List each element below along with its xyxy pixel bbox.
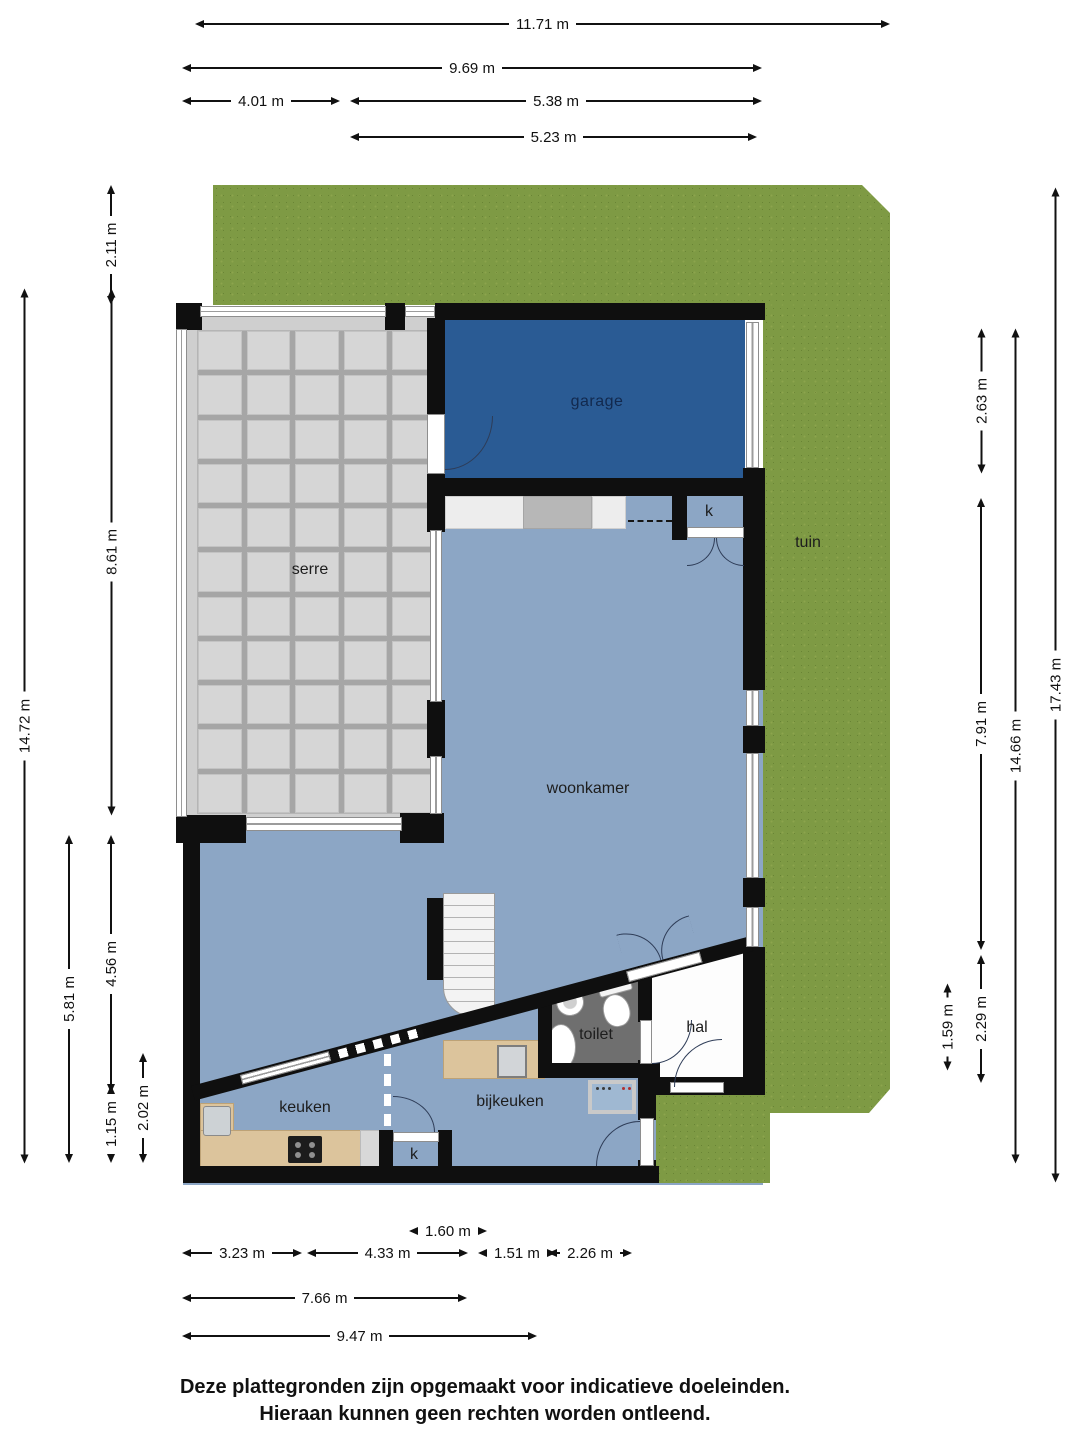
- stove-burners: [295, 1142, 301, 1148]
- serre-glass-panel: [295, 508, 339, 547]
- room-label-tuin: tuin: [795, 534, 821, 552]
- dimension-label: 7.91 m: [973, 694, 990, 754]
- room-label-hal: hal: [686, 1019, 707, 1037]
- dimension-label: 4.56 m: [103, 934, 120, 994]
- disclaimer-line-1: Deze plattegronden zijn opgemaakt voor i…: [0, 1374, 970, 1401]
- dimension-line: 9.47 m: [182, 1328, 537, 1344]
- dimension-label: 2.63 m: [973, 371, 990, 431]
- serre-glass-panel: [247, 375, 291, 414]
- dimension-label: 9.47 m: [330, 1328, 390, 1345]
- wall: [743, 878, 765, 907]
- wall: [435, 478, 765, 496]
- window: [200, 306, 386, 317]
- dimension-line: 1.15 m: [103, 1105, 119, 1163]
- wall: [385, 303, 405, 330]
- dimension-line: 7.66 m: [182, 1290, 467, 1306]
- window: [246, 817, 402, 831]
- serre-glass-panel: [295, 464, 339, 503]
- dimension-line: 17.43 m: [1047, 187, 1063, 1182]
- wall: [743, 468, 765, 690]
- wall: [427, 318, 445, 416]
- dimension-line: 5.81 m: [61, 835, 77, 1163]
- dimension-line: 3.23 m: [182, 1245, 302, 1261]
- serre-glass-panel: [295, 685, 339, 724]
- dimension-label: 7.66 m: [295, 1290, 355, 1307]
- dimension-label: 8.61 m: [103, 522, 120, 582]
- tuin-grass-patch: [656, 1093, 770, 1183]
- serre-glass-panel: [295, 331, 339, 370]
- dimension-line: 2.11 m: [103, 185, 119, 305]
- window: [746, 753, 759, 878]
- serre-glass-panel: [295, 641, 339, 680]
- dimension-label: 1.15 m: [103, 1094, 120, 1154]
- wall: [438, 1130, 452, 1168]
- floor-plan: 11.71 m9.69 m4.01 m5.38 m5.23 m2.11 m8.6…: [0, 0, 1080, 1440]
- room-label-serre: serre: [292, 561, 328, 579]
- serre-glass-panel: [295, 375, 339, 414]
- dimension-label: 14.72 m: [16, 691, 33, 759]
- dimension-label: 2.26 m: [560, 1245, 620, 1262]
- dimension-line: 5.23 m: [350, 129, 757, 145]
- dimension-line: 1.60 m: [409, 1223, 468, 1239]
- serre-glass-panel: [344, 375, 388, 414]
- serre-glass-panel: [198, 552, 242, 591]
- kitchen-sink: [203, 1106, 231, 1136]
- serre-glass-panel: [198, 464, 242, 503]
- room-label-toilet: toilet: [579, 1026, 613, 1044]
- wall: [427, 700, 445, 758]
- dimension-label: 9.69 m: [442, 60, 502, 77]
- room-label-garage: garage: [571, 393, 624, 411]
- dimension-line: 7.91 m: [973, 498, 989, 950]
- toilet-door-threshold: [640, 1020, 652, 1064]
- dimension-line: 2.29 m: [973, 955, 989, 1083]
- wall: [400, 813, 444, 843]
- serre-glass-panel: [344, 774, 388, 813]
- garage-door-threshold: [427, 414, 445, 474]
- serre-glass-panel: [344, 508, 388, 547]
- closet-top-threshold: [687, 527, 744, 538]
- serre-glass-panel: [295, 597, 339, 636]
- open-partition: [384, 1054, 391, 1132]
- dimension-label: 14.66 m: [1007, 711, 1024, 779]
- wall: [427, 898, 443, 980]
- dimension-label: 11.71 m: [509, 16, 576, 33]
- dimension-line: 2.63 m: [973, 328, 989, 473]
- dimension-line: 4.33 m: [307, 1245, 468, 1261]
- wall: [176, 303, 202, 330]
- room-label-keuken: keuken: [279, 1099, 331, 1117]
- serre-glass-panel: [344, 420, 388, 459]
- dimension-line: 4.01 m: [182, 93, 340, 109]
- dimension-label: 2.29 m: [973, 989, 990, 1049]
- dimension-label: 4.01 m: [231, 93, 291, 110]
- window: [430, 756, 442, 814]
- wall: [183, 1166, 659, 1183]
- serre-glass-panel: [198, 331, 242, 370]
- dimension-label: 5.81 m: [61, 969, 78, 1029]
- serre-glass-panel: [344, 464, 388, 503]
- back-door-threshold: [640, 1118, 654, 1166]
- dimension-line: 4.56 m: [103, 835, 119, 1093]
- serre-glass-panel: [344, 641, 388, 680]
- serre-glass-panel: [247, 641, 291, 680]
- serre-glass-panel: [344, 597, 388, 636]
- wall: [672, 480, 687, 540]
- serre-glass-panel: [247, 420, 291, 459]
- dimension-label: 5.38 m: [526, 93, 586, 110]
- wall: [743, 947, 765, 1095]
- room-label-closet-top: k: [705, 503, 713, 521]
- dimension-label: 5.23 m: [524, 129, 584, 146]
- disclaimer-line-2: Hieraan kunnen geen rechten worden ontle…: [0, 1401, 970, 1428]
- tuin-grass-top: [213, 185, 890, 305]
- serre-glass-panel: [247, 597, 291, 636]
- dimension-line: 14.72 m: [16, 288, 32, 1163]
- cabinet-strip: [592, 496, 626, 529]
- serre-glass-panel: [198, 641, 242, 680]
- dimension-line: 8.61 m: [103, 288, 119, 815]
- room-label-bijkeuken: bijkeuken: [476, 1093, 544, 1111]
- window: [176, 329, 187, 817]
- wall: [379, 1130, 393, 1168]
- serre-glass-panel: [247, 729, 291, 768]
- window: [430, 530, 442, 702]
- serre-glass-panel: [247, 508, 291, 547]
- serre-glass-panel: [295, 774, 339, 813]
- dimension-label: 1.60 m: [418, 1223, 478, 1240]
- serre-glass-panel: [198, 420, 242, 459]
- dimension-label: 2.11 m: [103, 216, 120, 275]
- dimension-label: 1.51 m: [487, 1245, 547, 1262]
- serre-glass-panel: [247, 552, 291, 591]
- dimension-line: 11.71 m: [195, 16, 890, 32]
- serre-glass-panel: [344, 685, 388, 724]
- room-label-closet-bottom: k: [410, 1146, 418, 1164]
- window: [746, 690, 759, 726]
- room-label-woonkamer: woonkamer: [547, 780, 630, 798]
- serre-glass-panel: [198, 685, 242, 724]
- stove: [288, 1136, 322, 1163]
- serre-glass-panel: [344, 729, 388, 768]
- wall: [435, 303, 765, 320]
- serre-glass-panel: [344, 552, 388, 591]
- cabinet-strip: [445, 496, 524, 529]
- washer: [497, 1045, 527, 1078]
- dimension-label: 2.02 m: [135, 1078, 152, 1138]
- cabinet-strip: [523, 496, 592, 529]
- utility-counter: [443, 1040, 545, 1079]
- dimension-label: 17.43 m: [1047, 650, 1064, 718]
- stairs: [443, 893, 495, 1017]
- dimension-label: 1.59 m: [939, 997, 956, 1057]
- window: [746, 322, 759, 468]
- window: [746, 907, 759, 947]
- wall: [743, 726, 765, 753]
- meter-cupboard: [588, 1080, 636, 1114]
- serre-glass-panel: [198, 774, 242, 813]
- dimension-line: 1.51 m: [478, 1245, 537, 1261]
- serre-glass-panel: [247, 331, 291, 370]
- serre-glass-panel: [198, 375, 242, 414]
- dimension-line: 5.38 m: [350, 93, 762, 109]
- serre-glass-panel: [295, 729, 339, 768]
- serre-glass-panel: [198, 597, 242, 636]
- serre-glass-panel: [295, 420, 339, 459]
- serre-glass-panel: [247, 685, 291, 724]
- dimension-line: 1.59 m: [939, 983, 955, 1070]
- dimension-label: 3.23 m: [212, 1245, 272, 1262]
- dimension-line: 14.66 m: [1007, 328, 1023, 1163]
- serre-glass-panel: [198, 729, 242, 768]
- dimension-line: 2.02 m: [135, 1053, 151, 1163]
- wall: [638, 1077, 656, 1120]
- dashed-partition: [628, 520, 672, 522]
- dimension-line: 9.69 m: [182, 60, 762, 76]
- disclaimer-footer: Deze plattegronden zijn opgemaakt voor i…: [0, 1374, 970, 1428]
- wall: [183, 820, 200, 1183]
- dimension-label: 4.33 m: [358, 1245, 418, 1262]
- serre-glass-panel: [198, 508, 242, 547]
- serre-glass-panel: [344, 331, 388, 370]
- window: [405, 306, 435, 317]
- serre-glass-panel: [247, 464, 291, 503]
- meter-dots: [596, 1087, 599, 1090]
- serre-glass-panel: [247, 774, 291, 813]
- dimension-line: 2.26 m: [548, 1245, 632, 1261]
- tuin-grass-right: [763, 305, 890, 1113]
- closet-bottom-threshold: [393, 1132, 439, 1142]
